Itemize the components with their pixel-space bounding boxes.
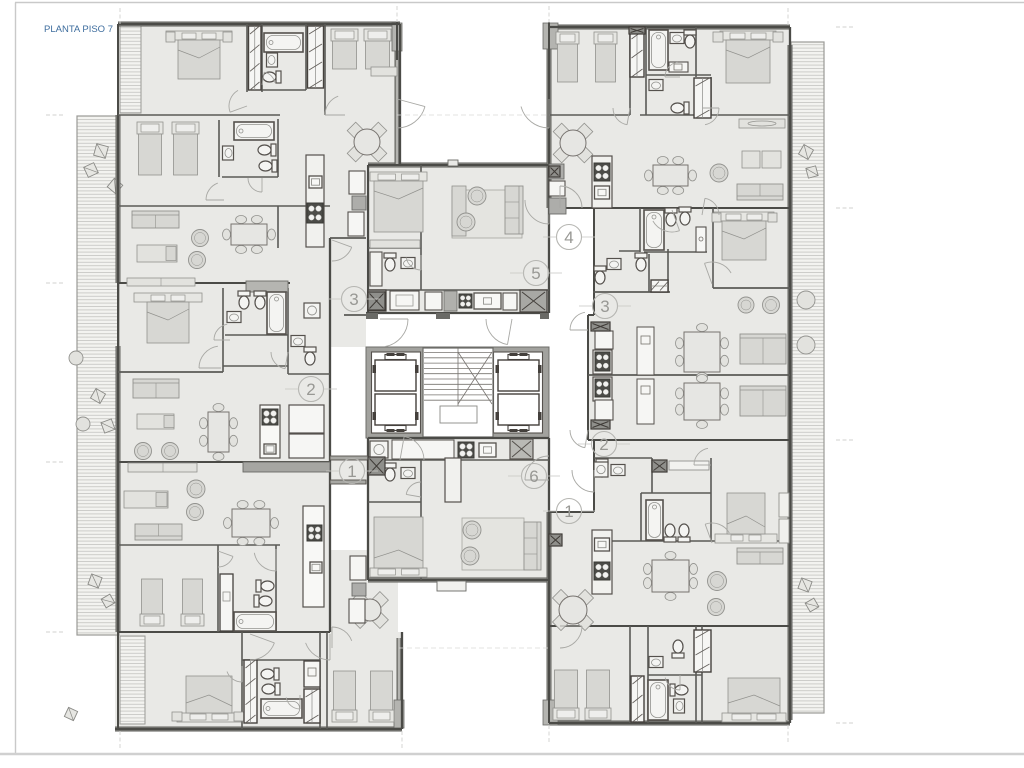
svg-text:2: 2 [306,380,315,399]
svg-text:1: 1 [347,462,356,481]
svg-text:3: 3 [349,290,358,309]
svg-text:PLANTA PISO 7: PLANTA PISO 7 [44,24,113,35]
svg-text:2: 2 [599,435,608,454]
svg-text:3: 3 [600,297,609,316]
svg-text:1: 1 [564,502,573,521]
svg-text:6: 6 [529,467,538,486]
svg-text:4: 4 [564,228,573,247]
svg-text:5: 5 [531,264,540,283]
